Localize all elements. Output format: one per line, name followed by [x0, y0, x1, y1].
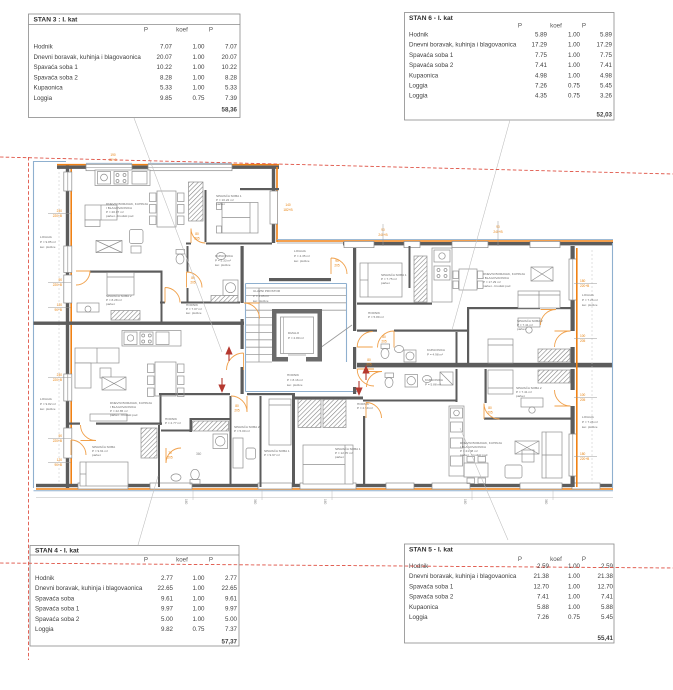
svg-text:1.00: 1.00	[568, 583, 581, 590]
svg-text:Loggia: Loggia	[34, 95, 53, 102]
svg-text:1.00: 1.00	[568, 594, 581, 601]
svg-text:5.45: 5.45	[601, 614, 614, 621]
svg-text:Spavaća soba 1: Spavaća soba 1	[34, 64, 79, 71]
svg-text:LOGGIA: LOGGIA	[40, 235, 53, 239]
svg-text:DIZALO: DIZALO	[288, 331, 300, 335]
svg-text:STAN 4 - I. kat: STAN 4 - I. kat	[35, 548, 80, 555]
svg-text:205: 205	[334, 264, 340, 268]
svg-text:0.75: 0.75	[568, 93, 581, 100]
svg-text:P = 5.33 m²: P = 5.33 m²	[215, 259, 231, 263]
svg-text:parket: parket	[335, 455, 344, 459]
svg-text:17.29: 17.29	[532, 42, 548, 49]
svg-text:ker. pločice: ker. pločice	[40, 407, 56, 411]
svg-text:1.00: 1.00	[192, 575, 205, 582]
svg-text:1.00: 1.00	[568, 32, 581, 39]
svg-text:52,03: 52,03	[597, 112, 613, 119]
svg-text:160: 160	[184, 499, 188, 505]
svg-text:1.00: 1.00	[192, 54, 205, 61]
svg-text:parket: parket	[106, 302, 115, 306]
svg-text:0.75: 0.75	[568, 614, 581, 621]
svg-text:205: 205	[580, 339, 586, 343]
svg-text:80: 80	[382, 335, 386, 339]
svg-text:1.00: 1.00	[192, 606, 205, 613]
svg-text:Spavaća soba 1: Spavaća soba 1	[409, 583, 454, 590]
svg-text:4.98: 4.98	[600, 72, 613, 79]
svg-text:Hodnik: Hodnik	[409, 32, 429, 39]
svg-text:80: 80	[235, 404, 239, 408]
svg-text:55,41: 55,41	[598, 635, 614, 642]
svg-text:90: 90	[335, 259, 339, 263]
svg-text:7.26: 7.26	[535, 83, 548, 90]
svg-text:Kupaonica: Kupaonica	[409, 72, 439, 79]
svg-text:5.45: 5.45	[600, 83, 613, 90]
svg-text:parket: parket	[517, 327, 526, 331]
svg-text:220+B: 220+B	[53, 378, 62, 382]
svg-text:5.89: 5.89	[600, 32, 613, 39]
svg-text:90+B: 90+B	[54, 308, 62, 312]
svg-text:220+B: 220+B	[53, 214, 62, 218]
svg-text:21.38: 21.38	[598, 573, 614, 580]
svg-text:58,36: 58,36	[222, 107, 238, 114]
svg-text:5.33: 5.33	[225, 85, 238, 92]
svg-text:Spavaća soba 1: Spavaća soba 1	[35, 606, 80, 613]
svg-text:2.77: 2.77	[161, 575, 174, 582]
svg-text:100: 100	[580, 334, 586, 338]
svg-text:Spavaća soba: Spavaća soba	[35, 595, 75, 602]
svg-text:1.00: 1.00	[568, 563, 581, 570]
svg-text:P = 5.00 m²: P = 5.00 m²	[234, 429, 250, 433]
svg-text:5.89: 5.89	[535, 32, 548, 39]
svg-text:P = 5.89 m²: P = 5.89 m²	[368, 315, 384, 319]
svg-text:koef: koef	[550, 556, 562, 563]
svg-text:7.41: 7.41	[600, 62, 613, 69]
svg-text:1.00: 1.00	[568, 62, 581, 69]
svg-text:180: 180	[580, 279, 586, 283]
svg-text:5.88: 5.88	[601, 604, 614, 611]
svg-text:P = 9.85 m²: P = 9.85 m²	[40, 240, 56, 244]
svg-text:parket - brodski pod: parket - brodski pod	[106, 214, 134, 218]
svg-text:P = 4.98 m²: P = 4.98 m²	[427, 353, 443, 357]
svg-text:ker. pločice: ker. pločice	[294, 259, 310, 263]
svg-text:koef: koef	[176, 27, 188, 34]
svg-text:Spavaća soba 2: Spavaća soba 2	[35, 616, 80, 623]
svg-text:20.07: 20.07	[157, 54, 173, 61]
svg-text:HODNIK: HODNIK	[287, 373, 300, 377]
svg-text:ker. pločice: ker. pločice	[582, 303, 598, 307]
svg-text:parket - brodski pod: parket - brodski pod	[460, 453, 488, 457]
svg-text:0.75: 0.75	[568, 83, 581, 90]
svg-text:80: 80	[195, 232, 199, 236]
svg-text:70: 70	[168, 451, 172, 455]
svg-text:ker. pločice: ker. pločice	[287, 383, 303, 387]
svg-text:240: 240	[57, 209, 63, 213]
svg-text:7.41: 7.41	[535, 62, 548, 69]
svg-text:Dnevni boravak, kuhinja i blag: Dnevni boravak, kuhinja i blagovaonica	[34, 54, 142, 61]
svg-text:koef: koef	[176, 557, 188, 564]
svg-text:ker. pločice: ker. pločice	[253, 299, 269, 303]
svg-text:182+B: 182+B	[283, 208, 292, 212]
svg-text:P: P	[518, 23, 522, 30]
svg-text:P = 4.35 m²: P = 4.35 m²	[294, 254, 310, 258]
svg-text:STAN 6 - I. kat: STAN 6 - I. kat	[409, 15, 454, 22]
svg-text:1.00: 1.00	[192, 616, 205, 623]
svg-text:120: 120	[57, 303, 63, 307]
svg-text:10.22: 10.22	[222, 64, 238, 71]
svg-text:ULAZNI PROSTOR: ULAZNI PROSTOR	[253, 289, 281, 293]
svg-text:10.22: 10.22	[157, 64, 173, 71]
svg-text:Spavaća soba 1: Spavaća soba 1	[409, 52, 454, 59]
svg-text:22.65: 22.65	[158, 585, 174, 592]
svg-text:Loggia: Loggia	[409, 614, 428, 621]
svg-text:1.00: 1.00	[192, 85, 205, 92]
svg-text:360: 360	[253, 499, 257, 505]
svg-text:P = 2.59 m²: P = 2.59 m²	[357, 406, 373, 410]
svg-text:205: 205	[381, 340, 387, 344]
svg-text:220+B: 220+B	[53, 283, 62, 287]
svg-text:parket: parket	[92, 453, 101, 457]
svg-text:P: P	[582, 556, 586, 563]
svg-text:LOGGIA: LOGGIA	[582, 415, 595, 419]
svg-text:240: 240	[57, 373, 63, 377]
svg-text:Hodnik: Hodnik	[34, 44, 54, 51]
svg-text:KUPAONICA: KUPAONICA	[215, 254, 234, 258]
svg-text:205: 205	[366, 363, 372, 367]
svg-text:160: 160	[323, 499, 327, 505]
svg-text:8.28: 8.28	[160, 74, 173, 81]
svg-text:7.26: 7.26	[537, 614, 550, 621]
svg-text:Spavaća soba 2: Spavaća soba 2	[34, 74, 79, 81]
svg-text:21.38: 21.38	[534, 573, 550, 580]
svg-text:205: 205	[167, 456, 173, 460]
svg-text:P = 2.80 m²: P = 2.80 m²	[288, 336, 304, 340]
svg-text:P = 9.97 m²: P = 9.97 m²	[264, 453, 280, 457]
svg-text:80: 80	[367, 358, 371, 362]
svg-text:Dnevni boravak, kuhinja i blag: Dnevni boravak, kuhinja i blagovaonica	[409, 573, 517, 580]
svg-text:P = 5.88 m²: P = 5.88 m²	[425, 383, 441, 387]
svg-text:LOGGIA: LOGGIA	[582, 293, 595, 297]
svg-text:1.00: 1.00	[568, 42, 581, 49]
svg-text:120: 120	[57, 458, 63, 462]
svg-text:220+B: 220+B	[53, 439, 62, 443]
svg-text:P: P	[209, 557, 213, 564]
svg-text:STAN 3 : I. kat: STAN 3 : I. kat	[34, 17, 79, 24]
svg-text:Loggia: Loggia	[409, 93, 428, 100]
svg-text:220+B: 220+B	[580, 284, 589, 288]
svg-text:20.07: 20.07	[222, 54, 238, 61]
svg-text:1.00: 1.00	[568, 52, 581, 59]
svg-text:360: 360	[544, 499, 548, 505]
svg-text:parket: parket	[516, 394, 525, 398]
svg-text:9.97: 9.97	[225, 606, 238, 613]
svg-text:P = 3.05 m²: P = 3.05 m²	[253, 294, 269, 298]
svg-text:P: P	[518, 556, 522, 563]
svg-text:0.75: 0.75	[192, 95, 205, 102]
svg-text:5.00: 5.00	[225, 616, 238, 623]
svg-text:80: 80	[488, 406, 492, 410]
svg-text:1.00: 1.00	[192, 595, 205, 602]
svg-text:Kupaonica: Kupaonica	[34, 85, 64, 92]
svg-text:parket: parket	[381, 281, 390, 285]
svg-text:STAN 5 - I. kat: STAN 5 - I. kat	[409, 547, 454, 554]
svg-text:Hodnik: Hodnik	[35, 575, 55, 582]
svg-text:7.37: 7.37	[225, 626, 238, 633]
svg-text:8.28: 8.28	[225, 74, 238, 81]
svg-text:57,37: 57,37	[222, 639, 238, 646]
svg-text:LOGGIA: LOGGIA	[40, 397, 53, 401]
svg-text:P = 7.26 m²: P = 7.26 m²	[582, 420, 598, 424]
svg-text:17.29: 17.29	[597, 42, 613, 49]
svg-text:koef: koef	[550, 23, 562, 30]
svg-text:190: 190	[110, 153, 116, 157]
svg-text:KUPAONICA: KUPAONICA	[427, 348, 446, 352]
svg-text:5.88: 5.88	[537, 604, 550, 611]
svg-text:100: 100	[580, 393, 586, 397]
svg-text:Spavaća soba 2: Spavaća soba 2	[409, 594, 454, 601]
svg-text:7.75: 7.75	[535, 52, 548, 59]
svg-text:P: P	[144, 27, 148, 34]
svg-text:P = 9.82 m²: P = 9.82 m²	[40, 402, 56, 406]
svg-text:7.07: 7.07	[160, 44, 173, 51]
svg-text:P = 7.26 m²: P = 7.26 m²	[582, 298, 598, 302]
svg-text:1.00: 1.00	[192, 44, 205, 51]
svg-text:4.98: 4.98	[535, 72, 548, 79]
svg-text:P: P	[209, 27, 213, 34]
svg-text:P: P	[144, 557, 148, 564]
svg-text:9.61: 9.61	[225, 595, 238, 602]
svg-text:0.75: 0.75	[192, 626, 205, 633]
svg-text:90: 90	[58, 434, 62, 438]
svg-text:Loggia: Loggia	[409, 83, 428, 90]
svg-text:Spavaća soba 2: Spavaća soba 2	[409, 62, 454, 69]
svg-text:1.00: 1.00	[192, 64, 205, 71]
svg-text:1.00: 1.00	[192, 74, 205, 81]
svg-text:Dnevni boravak, kuhinja i blag: Dnevni boravak, kuhinja i blagovaonica	[409, 42, 517, 49]
svg-text:5.00: 5.00	[161, 616, 174, 623]
svg-text:Loggia: Loggia	[35, 626, 54, 633]
svg-text:22.65: 22.65	[222, 585, 238, 592]
svg-text:P = 8.16 m²: P = 8.16 m²	[287, 378, 303, 382]
svg-text:parket - brodski pod: parket - brodski pod	[110, 413, 138, 417]
svg-text:205: 205	[234, 409, 240, 413]
svg-text:7.41: 7.41	[537, 594, 550, 601]
svg-text:ker. pločice: ker. pločice	[582, 425, 598, 429]
svg-text:90: 90	[58, 278, 62, 282]
svg-text:2.59: 2.59	[601, 563, 614, 570]
svg-text:360: 360	[196, 452, 202, 456]
svg-text:12.70: 12.70	[534, 583, 550, 590]
svg-text:2.77: 2.77	[225, 575, 238, 582]
svg-text:1.00: 1.00	[192, 585, 205, 592]
svg-text:7.39: 7.39	[225, 95, 238, 102]
svg-text:P = 2.77 m²: P = 2.77 m²	[165, 421, 181, 425]
svg-text:9.82: 9.82	[161, 626, 174, 633]
svg-text:12.70: 12.70	[598, 583, 614, 590]
svg-text:4.35: 4.35	[535, 93, 548, 100]
svg-text:205: 205	[580, 398, 586, 402]
svg-text:90+B: 90+B	[54, 463, 62, 467]
svg-text:ker. pločice: ker. pločice	[40, 245, 56, 249]
svg-text:5.33: 5.33	[160, 85, 173, 92]
svg-text:7.07: 7.07	[225, 44, 238, 51]
svg-text:9.61: 9.61	[161, 595, 174, 602]
svg-text:9.97: 9.97	[161, 606, 174, 613]
svg-text:2.59: 2.59	[537, 563, 550, 570]
svg-text:205: 205	[487, 411, 493, 415]
svg-text:140: 140	[285, 203, 291, 207]
svg-text:Dnevni boravak, kuhinja i blag: Dnevni boravak, kuhinja i blagovaonica	[35, 585, 143, 592]
svg-text:LOGGIA: LOGGIA	[294, 249, 307, 253]
svg-text:KUPAONICA: KUPAONICA	[425, 378, 444, 382]
svg-text:1.00: 1.00	[568, 573, 581, 580]
svg-text:9.85: 9.85	[160, 95, 173, 102]
svg-text:P: P	[582, 23, 586, 30]
svg-text:205: 205	[194, 237, 200, 241]
svg-text:180: 180	[580, 452, 586, 456]
svg-text:3.26: 3.26	[600, 93, 613, 100]
svg-text:1.00: 1.00	[568, 604, 581, 611]
svg-text:160: 160	[463, 499, 467, 505]
svg-text:parket: parket	[216, 202, 225, 206]
svg-text:1.00: 1.00	[568, 72, 581, 79]
svg-text:7.75: 7.75	[600, 52, 613, 59]
svg-text:220+B: 220+B	[580, 457, 589, 461]
svg-text:ker. pločice: ker. pločice	[215, 263, 231, 267]
svg-text:parket - brodski pod: parket - brodski pod	[483, 284, 511, 288]
svg-text:7.41: 7.41	[601, 594, 614, 601]
svg-text:ker. pločice: ker. pločice	[186, 311, 202, 315]
svg-text:Kupaonica: Kupaonica	[409, 604, 439, 611]
